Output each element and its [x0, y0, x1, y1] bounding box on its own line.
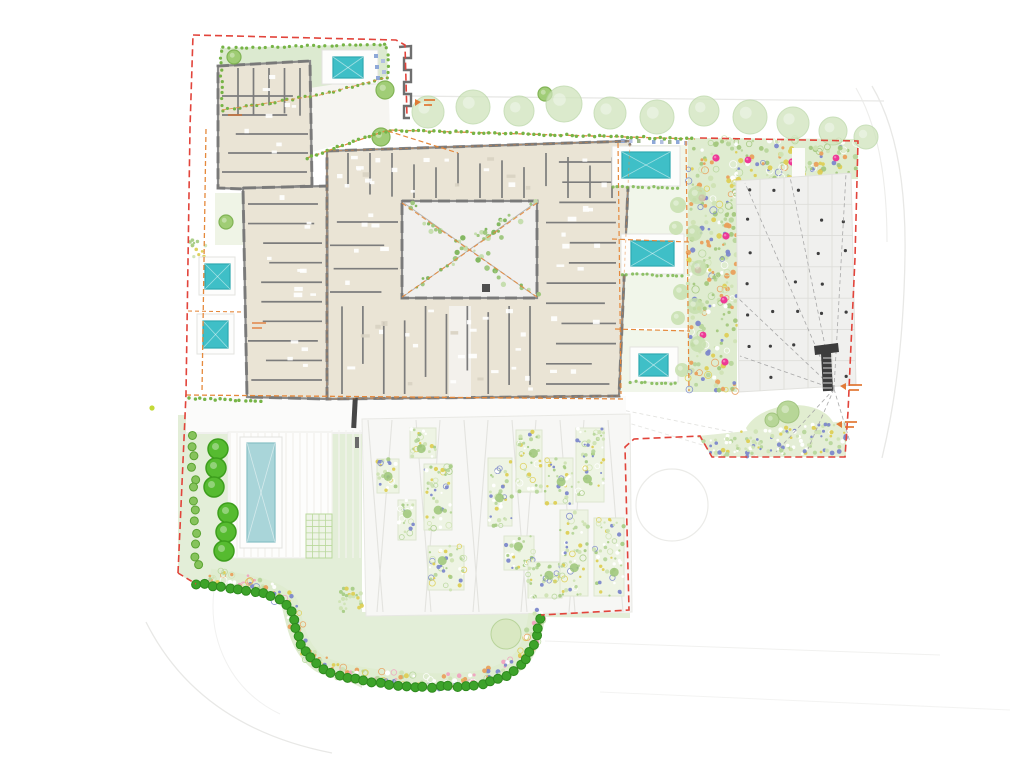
- site-plan-page: [0, 0, 1024, 768]
- architectural-site-plan: [0, 0, 1024, 768]
